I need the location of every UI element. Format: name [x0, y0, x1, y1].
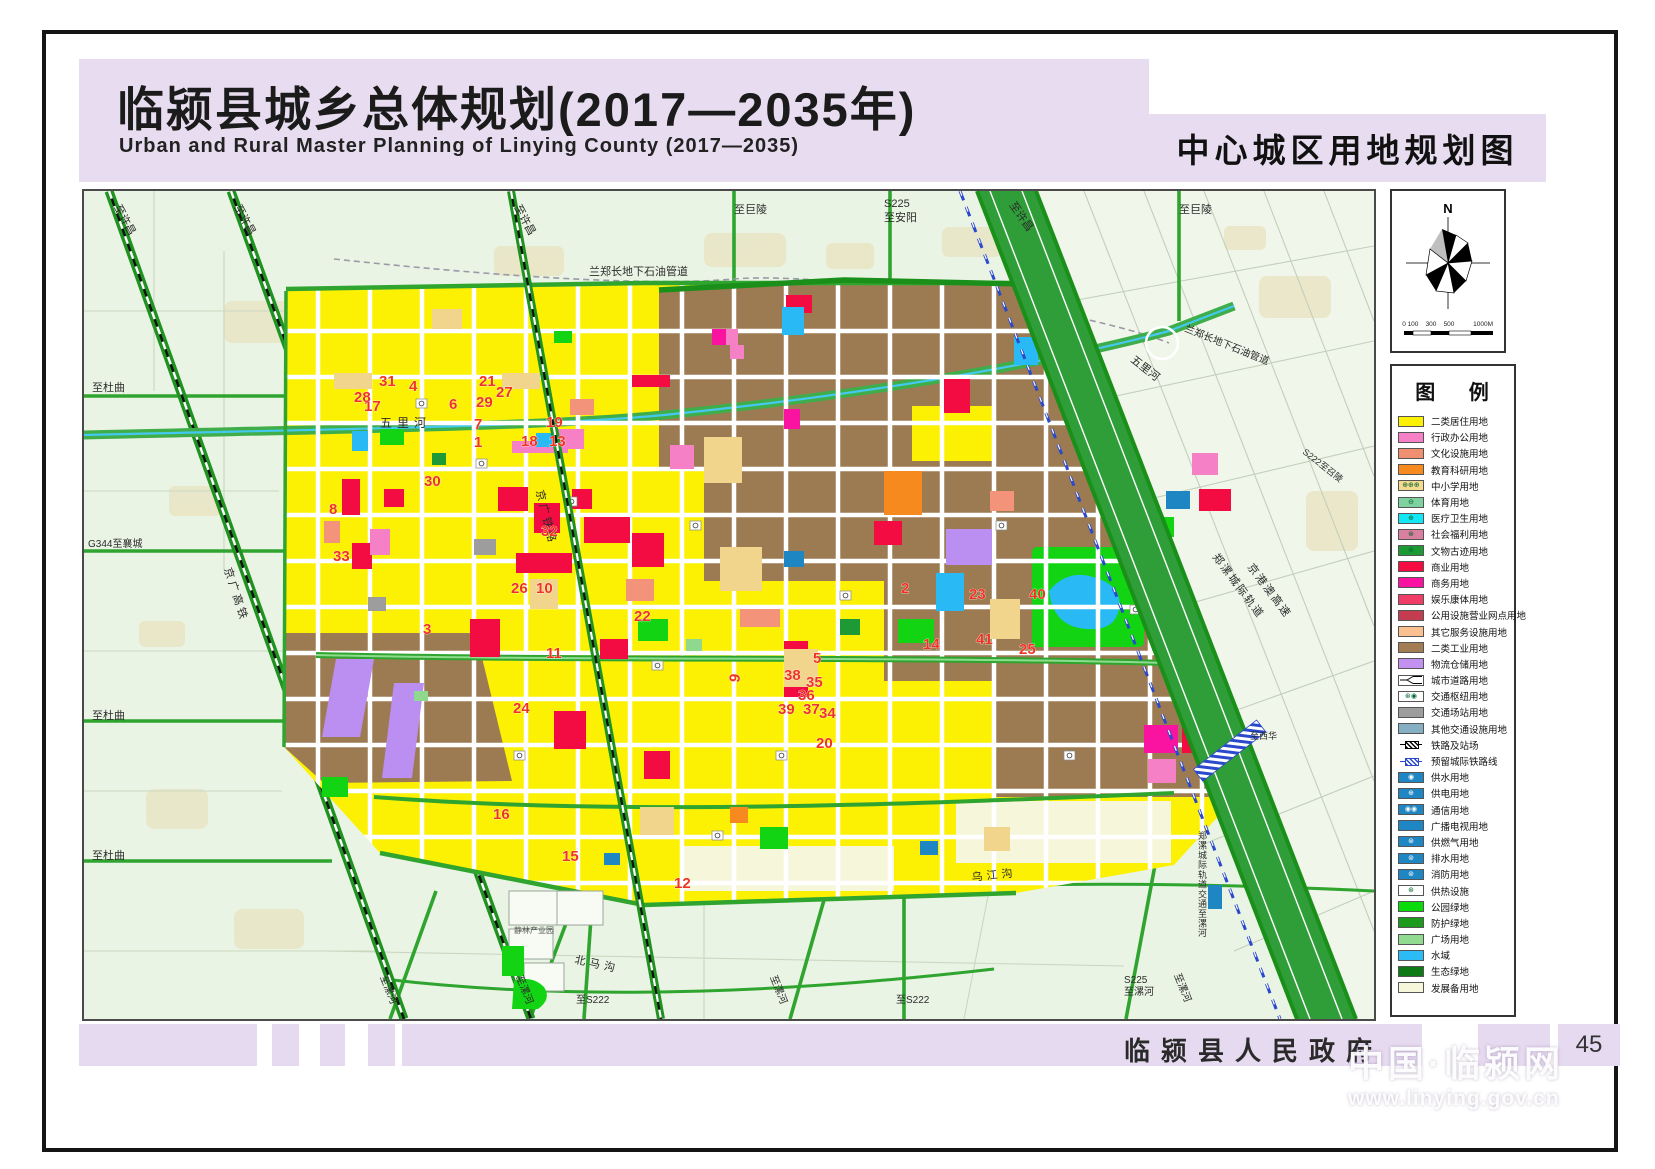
legend-label: 生态绿地: [1431, 964, 1469, 978]
legend-symbol-icon: ⊚: [1408, 547, 1414, 554]
legend-list: 二类居住用地行政办公用地文化设施用地教育科研用地⊕⊕⊕中小学用地⊖体育用地⊕医疗…: [1398, 413, 1510, 996]
map-label: 至西华: [1250, 730, 1277, 741]
legend-symbol-icon: ⊕: [1408, 790, 1414, 797]
legend-label: 供电用地: [1431, 786, 1469, 800]
legend-label: 物流仓储用地: [1431, 657, 1488, 671]
map-label: 至巨陵: [734, 203, 767, 216]
legend-item: ⊕⊕⊕中小学用地: [1398, 478, 1510, 494]
plot-number: 30: [424, 473, 441, 490]
legend-item: ⊕医疗卫生用地: [1398, 510, 1510, 526]
legend-item: ⊚文物古迹用地: [1398, 543, 1510, 559]
map-sheet-title: 中心城区用地规划图: [1177, 124, 1519, 172]
legend-swatch-icon: ⊛◉: [1398, 691, 1424, 702]
plot-number: 27: [496, 384, 513, 401]
legend-label: 其它服务设施用地: [1431, 625, 1507, 639]
legend-item: 行政办公用地: [1398, 429, 1510, 445]
legend-label: 预留城际铁路线: [1431, 754, 1498, 768]
map-label: 至S222: [896, 994, 930, 1006]
map-label: 至杜曲: [92, 380, 125, 394]
legend-label: 行政办公用地: [1431, 430, 1488, 444]
legend-label: 交通枢纽用地: [1431, 689, 1488, 703]
legend-item: 广播电视用地: [1398, 818, 1510, 834]
legend-label: 城市道路用地: [1431, 673, 1488, 687]
legend-swatch-icon: [1398, 707, 1424, 718]
plot-number: 6: [449, 396, 457, 413]
legend-item: 交通场站用地: [1398, 704, 1510, 720]
legend-item: ⊛供热设施: [1398, 882, 1510, 898]
plot-number: 13: [549, 433, 566, 450]
scale-tick-label: 0: [1402, 321, 1406, 328]
plot-number: 37: [803, 701, 820, 718]
plot-number: 11: [546, 645, 562, 662]
legend-item: 生态绿地: [1398, 963, 1510, 979]
park-green-sw: [502, 946, 524, 976]
legend-swatch-icon: [1398, 642, 1424, 653]
legend-item: ⊚排水用地: [1398, 850, 1510, 866]
page-number: 45: [1558, 1024, 1620, 1066]
legend-label: 通信用地: [1431, 803, 1469, 817]
legend-label: 社会福利用地: [1431, 527, 1488, 541]
legend-item: ⊛社会福利用地: [1398, 526, 1510, 542]
legend-label: 交通场站用地: [1431, 705, 1488, 719]
plot-number: 10: [536, 580, 553, 597]
legend-swatch-icon: [1398, 675, 1424, 686]
footer-block: [320, 1024, 345, 1066]
main-title-chinese: 临颍县城乡总体规划(2017—2035年): [117, 71, 916, 140]
scale-tick-label: 100: [1408, 321, 1419, 328]
plot-number: 5: [813, 650, 821, 667]
legend-label: 供水用地: [1431, 770, 1469, 784]
plot-number: 15: [562, 848, 579, 865]
plot-number: 20: [816, 735, 833, 752]
plot-number: 29: [476, 394, 493, 411]
north-label: N: [1443, 201, 1452, 216]
header-band-right: 中心城区用地规划图: [1149, 114, 1546, 182]
plot-number: 16: [493, 806, 510, 823]
legend-swatch-icon: ⊖: [1398, 497, 1424, 508]
legend-swatch-icon: ⊛: [1398, 885, 1424, 896]
footer-block: [1478, 1024, 1550, 1066]
legend-swatch-icon: ⊚: [1398, 869, 1424, 880]
plot-number: 2: [901, 580, 909, 597]
map-frame: 至许昌至许昌至许昌至巨陵S225至安阳至许昌至巨陵兰郑长地下石油管道兰郑长地下石…: [82, 189, 1376, 1021]
legend-item: 二类居住用地: [1398, 413, 1510, 429]
legend-item: 其它服务设施用地: [1398, 623, 1510, 639]
legend-swatch-icon: [1398, 723, 1424, 734]
legend-item: 城市道路用地: [1398, 672, 1510, 688]
scale-tick-label: 1000M: [1473, 321, 1493, 328]
legend-label: 文物古迹用地: [1431, 544, 1488, 558]
scale-tick-label: 300: [1426, 321, 1437, 328]
plot-number: 12: [674, 875, 691, 892]
legend-label: 文化设施用地: [1431, 446, 1488, 460]
legend-label: 广播电视用地: [1431, 819, 1488, 833]
legend-item: ◉◉通信用地: [1398, 802, 1510, 818]
plot-number: 33: [333, 548, 350, 565]
plot-number: 14: [923, 636, 940, 653]
plot-number: 24: [513, 700, 530, 717]
railway-glyph-icon: [1400, 744, 1422, 745]
header-band-left: 临颍县城乡总体规划(2017—2035年) Urban and Rural Ma…: [79, 59, 1149, 182]
legend-item: 铁路及站场: [1398, 737, 1510, 753]
map-label: 至安阳: [884, 210, 917, 224]
legend-title: 图 例: [1408, 376, 1510, 405]
legend-item: 物流仓储用地: [1398, 656, 1510, 672]
legend-label: 排水用地: [1431, 851, 1469, 865]
legend-item: 二类工业用地: [1398, 640, 1510, 656]
legend-symbol-icon: ⊛◉: [1405, 693, 1417, 700]
legend-label: 二类居住用地: [1431, 414, 1488, 428]
legend-symbol-icon: ⊛: [1408, 531, 1414, 538]
legend-item: ◉供水用地: [1398, 769, 1510, 785]
plot-number: 8: [329, 501, 337, 518]
map-label: S225: [884, 198, 910, 210]
scale-tick-label: 500: [1444, 321, 1455, 328]
plot-number: 19: [546, 414, 563, 431]
legend-swatch-icon: [1398, 820, 1424, 831]
footer-block: [272, 1024, 299, 1066]
legend-swatch-icon: [1398, 626, 1424, 637]
legend-label: 医疗卫生用地: [1431, 511, 1488, 525]
map-label: 至S222: [576, 994, 610, 1006]
legend-item: 商务用地: [1398, 575, 1510, 591]
legend-label: 其他交通设施用地: [1431, 722, 1507, 736]
legend-box: 图 例 二类居住用地行政办公用地文化设施用地教育科研用地⊕⊕⊕中小学用地⊖体育用…: [1390, 364, 1516, 1017]
plot-number: 7: [474, 416, 482, 433]
plot-number: 1: [474, 434, 482, 451]
legend-item: 其他交通设施用地: [1398, 721, 1510, 737]
poster-page: 临颍县城乡总体规划(2017—2035年) Urban and Rural Ma…: [42, 30, 1618, 1152]
plot-number: 40: [1029, 586, 1046, 603]
legend-label: 商业用地: [1431, 560, 1469, 574]
legend-symbol-icon: ⊚: [1408, 871, 1414, 878]
legend-swatch-icon: [1398, 917, 1424, 928]
legend-swatch-icon: ⊛: [1398, 836, 1424, 847]
legend-item: 公园绿地: [1398, 899, 1510, 915]
legend-swatch-icon: ⊕: [1398, 513, 1424, 524]
scale-bar: 01003005001000M: [1402, 321, 1493, 335]
legend-item: ⊕供电用地: [1398, 785, 1510, 801]
legend-swatch-icon: ⊚: [1398, 853, 1424, 864]
legend-label: 教育科研用地: [1431, 463, 1488, 477]
legend-swatch-icon: [1398, 901, 1424, 912]
legend-swatch-icon: ◉◉: [1398, 804, 1424, 815]
legend-label: 广场用地: [1431, 932, 1469, 946]
wind-rose: [1426, 229, 1472, 293]
legend-item: 水域: [1398, 947, 1510, 963]
legend-item: 广场用地: [1398, 931, 1510, 947]
legend-label: 水域: [1431, 948, 1450, 962]
plot-number: 21: [479, 373, 496, 390]
legend-label: 铁路及站场: [1431, 738, 1479, 752]
legend-item: 公用设施营业网点用地: [1398, 607, 1510, 623]
main-title-english: Urban and Rural Master Planning of Linyi…: [119, 135, 799, 158]
plot-number: 4: [409, 378, 418, 395]
legend-symbol-icon: ⊕: [1408, 515, 1414, 522]
legend-symbol-icon: ◉: [1408, 774, 1414, 781]
map-label: G344至襄城: [88, 537, 142, 550]
plot-number: 34: [819, 705, 836, 722]
legend-swatch-icon: ⊚: [1398, 545, 1424, 556]
legend-item: 教育科研用地: [1398, 462, 1510, 478]
legend-swatch-icon: [1398, 610, 1424, 621]
footer-block: [368, 1024, 395, 1066]
legend-item: ⊖体育用地: [1398, 494, 1510, 510]
legend-label: 体育用地: [1431, 495, 1469, 509]
legend-swatch-icon: [1398, 432, 1424, 443]
legend-item: 文化设施用地: [1398, 445, 1510, 461]
map-label: 至巨陵: [1179, 203, 1212, 216]
compass-box: N 01003005001000M: [1390, 189, 1506, 353]
legend-symbol-icon: ◉◉: [1405, 806, 1417, 813]
legend-item: ⊚消防用地: [1398, 866, 1510, 882]
map-label: 五里河: [380, 416, 431, 430]
legend-symbol-icon: ⊖: [1408, 499, 1414, 506]
legend-swatch-icon: [1398, 982, 1424, 993]
plot-number: 41: [976, 631, 993, 648]
legend-swatch-icon: [1398, 448, 1424, 459]
legend-swatch-icon: ◉: [1398, 772, 1424, 783]
legend-item: 发展备用地: [1398, 980, 1510, 996]
railway-glyph-icon: [1400, 761, 1422, 762]
legend-swatch-icon: [1398, 658, 1424, 669]
legend-swatch-icon: [1398, 577, 1424, 588]
legend-swatch-icon: [1398, 561, 1424, 572]
legend-symbol-icon: ⊛: [1408, 838, 1414, 845]
legend-swatch-icon: [1398, 756, 1424, 767]
map-label: 郑漯城际轨道交通至漯河: [1198, 830, 1207, 938]
legend-swatch-icon: ⊕: [1398, 788, 1424, 799]
planning-poster-page: { "header": { "title_cn": "临颍县城乡总体规划(201…: [0, 0, 1655, 1169]
legend-label: 公用设施营业网点用地: [1431, 608, 1526, 622]
legend-swatch-icon: [1398, 934, 1424, 945]
road-glyph-icon: [1399, 675, 1423, 685]
footer-block: [79, 1024, 257, 1066]
legend-label: 防护绿地: [1431, 916, 1469, 930]
plot-number: 32: [541, 523, 558, 540]
government-label: 临颍县人民政府: [1124, 1031, 1383, 1068]
legend-label: 中小学用地: [1431, 479, 1479, 493]
land-use-map-canvas: 至许昌至许昌至许昌至巨陵S225至安阳至许昌至巨陵兰郑长地下石油管道兰郑长地下石…: [84, 191, 1374, 1019]
map-label: 至漯河: [1124, 986, 1154, 998]
legend-label: 发展备用地: [1431, 981, 1479, 995]
legend-item: ⊛◉交通枢纽用地: [1398, 688, 1510, 704]
legend-item: 娱乐康体用地: [1398, 591, 1510, 607]
plot-number: 38: [784, 667, 801, 684]
legend-label: 供热设施: [1431, 884, 1469, 898]
legend-label: 商务用地: [1431, 576, 1469, 590]
map-label: 静林产业园: [514, 925, 554, 935]
plot-number: 31: [379, 373, 396, 390]
plot-number: 23: [969, 586, 986, 603]
legend-label: 公园绿地: [1431, 900, 1469, 914]
map-label: 兰郑长地下石油管道: [589, 264, 688, 278]
legend-item: 预留城际铁路线: [1398, 753, 1510, 769]
legend-label: 娱乐康体用地: [1431, 592, 1488, 606]
legend-item: 商业用地: [1398, 559, 1510, 575]
legend-swatch-icon: [1398, 464, 1424, 475]
legend-symbol-icon: ⊚: [1408, 855, 1414, 862]
legend-swatch-icon: [1398, 950, 1424, 961]
map-label: 至杜曲: [92, 848, 125, 862]
map-label: 至杜曲: [92, 708, 125, 722]
legend-swatch-icon: ⊕⊕⊕: [1398, 480, 1424, 491]
legend-swatch-icon: [1398, 594, 1424, 605]
map-label: S225: [1124, 975, 1148, 986]
legend-symbol-icon: ⊕⊕⊕: [1402, 482, 1420, 489]
legend-item: ⊛供燃气用地: [1398, 834, 1510, 850]
plot-number: 22: [634, 608, 651, 625]
plot-number: 25: [1019, 641, 1036, 658]
plot-number: 28: [354, 389, 371, 406]
legend-label: 供燃气用地: [1431, 835, 1479, 849]
legend-swatch-icon: [1398, 739, 1424, 750]
north-arrow-icon: N 01003005001000M: [1392, 191, 1504, 347]
legend-swatch-icon: ⊛: [1398, 529, 1424, 540]
plot-number: 26: [511, 580, 528, 597]
plot-number: 39: [778, 701, 795, 718]
legend-swatch-icon: [1398, 416, 1424, 427]
plot-number: 3: [423, 621, 431, 638]
legend-symbol-icon: ⊛: [1408, 887, 1414, 894]
legend-label: 二类工业用地: [1431, 641, 1488, 655]
legend-swatch-icon: [1398, 966, 1424, 977]
plot-number: 18: [521, 433, 538, 450]
legend-label: 消防用地: [1431, 867, 1469, 881]
legend-item: 防护绿地: [1398, 915, 1510, 931]
